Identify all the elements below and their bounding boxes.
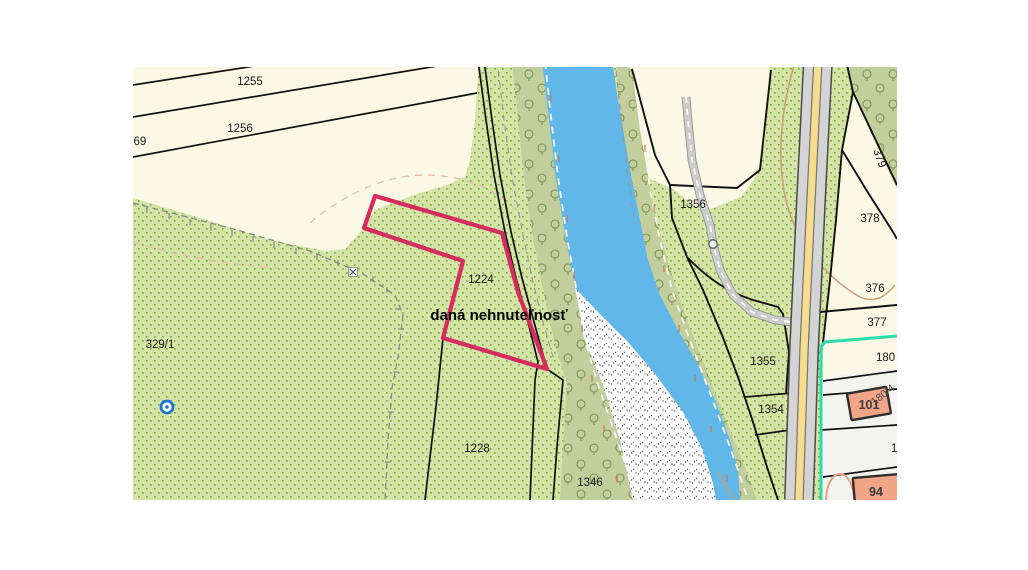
parcel-label-69: 69 [134, 136, 147, 148]
building-label-101: 101 [859, 398, 880, 412]
parcel-label-1356: 1356 [680, 199, 706, 211]
parcel-label-cut: 1 [891, 443, 897, 455]
parcel-label-1224: 1224 [468, 274, 494, 286]
survey-cross-mark [349, 268, 358, 277]
parcel-label-376: 376 [865, 283, 884, 295]
road [799, 67, 818, 500]
parcel-label-1354: 1354 [758, 404, 784, 416]
track-waypoint-symbol [709, 240, 717, 248]
highlight-caption: daná nehnuteľnosť [430, 307, 568, 324]
building-label-94: 94 [869, 485, 883, 499]
parcel-label-1346: 1346 [577, 477, 603, 489]
parcel-label-1228: 1228 [464, 443, 490, 455]
parcel-label-329-1: 329/1 [146, 339, 175, 351]
parcel-label-1256: 1256 [227, 123, 253, 135]
parcel-label-180: 180 [876, 352, 895, 364]
cadastral-map-screenshot: 180/4 101 94 1255 1256 69 329/1 1224 122… [0, 0, 1028, 570]
parcel-label-1355: 1355 [750, 356, 776, 368]
well-symbol [161, 401, 173, 413]
parcel-label-378: 378 [860, 213, 879, 225]
cadastral-map-svg: 180/4 101 94 1255 1256 69 329/1 1224 122… [133, 67, 897, 500]
parcel-label-1255: 1255 [237, 76, 263, 88]
map-canvas[interactable]: 180/4 101 94 1255 1256 69 329/1 1224 122… [133, 67, 897, 500]
parcel-label-377: 377 [867, 317, 886, 329]
